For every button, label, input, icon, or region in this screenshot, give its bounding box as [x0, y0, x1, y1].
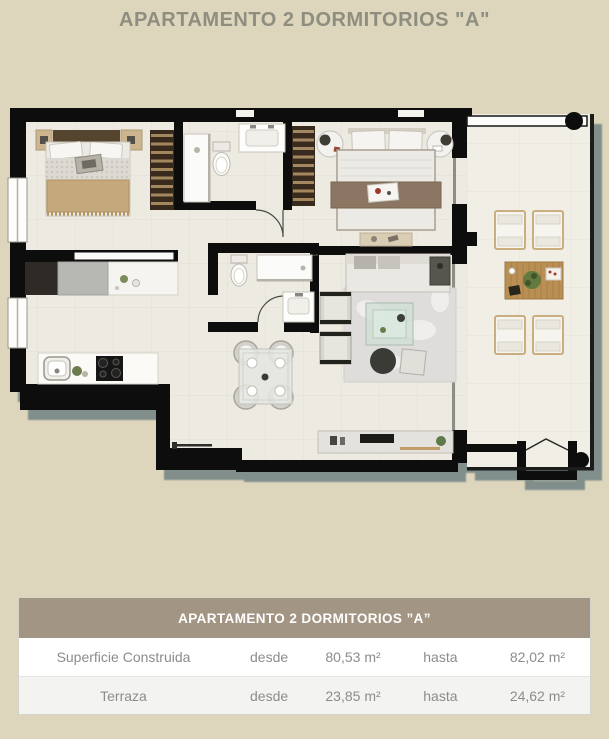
spec-table-header: APARTAMENTO 2 DORMITORIOS ”A”	[19, 598, 590, 638]
column	[565, 112, 583, 130]
from-label: desde	[228, 688, 310, 704]
to-label: hasta	[396, 649, 485, 665]
dining-set	[234, 341, 293, 409]
from-value: 80,53 m²	[310, 649, 396, 665]
from-label: desde	[228, 649, 310, 665]
to-value: 24,62 m²	[485, 688, 590, 704]
spec-table: APARTAMENTO 2 DORMITORIOS ”A” Superficie…	[18, 597, 591, 715]
wardrobe	[150, 130, 174, 210]
glass-door	[453, 158, 456, 204]
row-label: Superficie Construida	[19, 649, 228, 665]
apartment-plan	[8, 108, 594, 480]
pass-through-counter	[74, 252, 174, 260]
wall-vent	[236, 110, 254, 117]
bedroom2-bed	[317, 128, 453, 246]
from-value: 23,85 m²	[310, 688, 396, 704]
table-row: Superficie Construida desde 80,53 m² has…	[19, 638, 590, 676]
wall-vent	[398, 110, 424, 117]
to-label: hasta	[396, 688, 485, 704]
entrance-door	[174, 444, 212, 447]
row-label: Terraza	[19, 688, 228, 704]
wardrobe	[292, 126, 315, 206]
table-row: Terraza desde 23,85 m² hasta 24,62 m²	[19, 676, 590, 714]
bedroom1-bed	[36, 130, 142, 216]
to-value: 82,02 m²	[485, 649, 590, 665]
